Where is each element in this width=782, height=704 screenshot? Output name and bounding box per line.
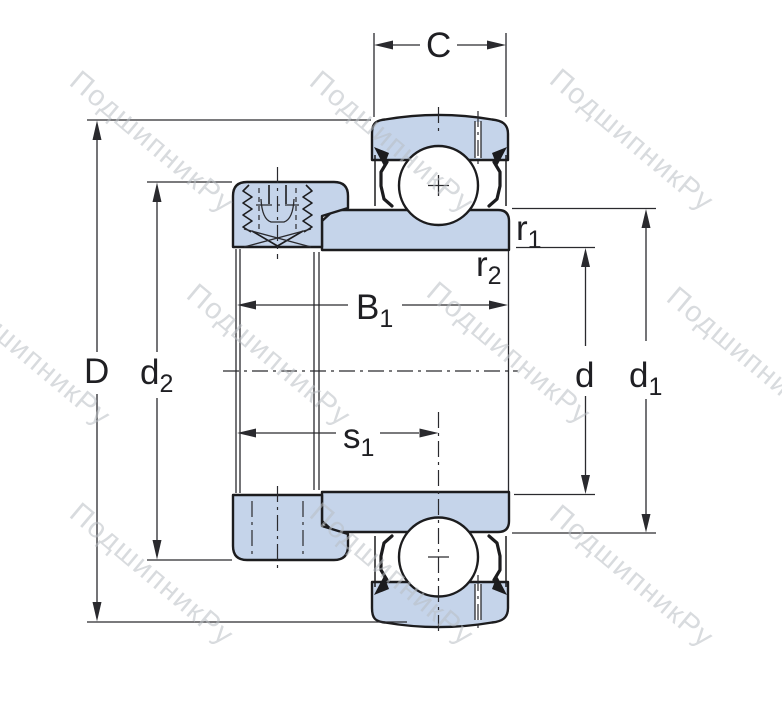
- dim-label-s1: s1: [343, 417, 374, 462]
- watermark-layer: ПодшипникРу ПодшипникРу ПодшипникРу Подш…: [0, 63, 782, 654]
- dim-label-C: C: [426, 26, 451, 65]
- watermark-text: ПодшипникРу: [544, 499, 721, 654]
- watermark-text: ПодшипникРу: [544, 63, 721, 218]
- watermark-text: ПодшипникРу: [64, 497, 241, 652]
- dim-label-B1: B1: [356, 288, 393, 333]
- dimension-d2: d2: [140, 182, 232, 560]
- dim-label-d: d: [575, 356, 594, 395]
- watermark-text: ПодшипникРу: [64, 65, 241, 220]
- bearing-cross-section-diagram: C D d2 B1 s1 d: [0, 0, 782, 704]
- dim-label-d1: d1: [629, 356, 662, 401]
- watermark-text: ПодшипникРу: [661, 281, 782, 436]
- bearing-drawing-canvas: C D d2 B1 s1 d: [0, 0, 782, 704]
- watermark-text: ПодшипникРу: [181, 278, 358, 433]
- dim-label-r2: r2: [476, 245, 502, 290]
- dim-label-d2: d2: [140, 353, 173, 398]
- dimension-C: C: [374, 26, 506, 117]
- dim-label-r1: r1: [516, 209, 542, 254]
